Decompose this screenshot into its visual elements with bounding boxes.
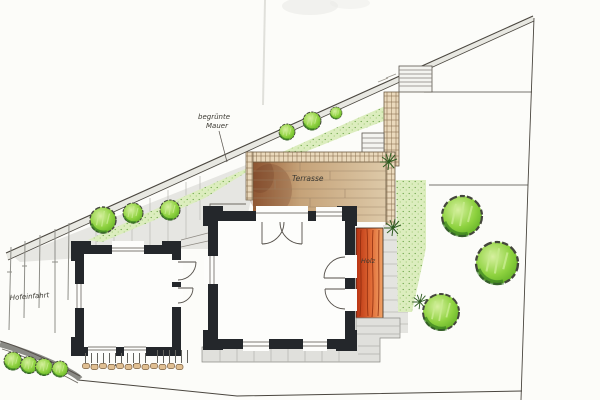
bush bbox=[4, 352, 22, 370]
bush bbox=[279, 124, 295, 140]
garden-site-plan: Hofeinfahrt begrünte Mauer bbox=[0, 0, 600, 400]
label-greened-wall-line2: Mauer bbox=[206, 122, 229, 130]
wood-deck: Holz bbox=[356, 228, 383, 318]
outbuilding bbox=[71, 241, 196, 356]
window bbox=[243, 335, 269, 351]
main-house bbox=[203, 206, 357, 351]
tree bbox=[476, 242, 518, 284]
label-terrace: Terrasse bbox=[292, 174, 324, 183]
bush bbox=[90, 207, 116, 233]
tree bbox=[442, 196, 482, 236]
window bbox=[112, 241, 144, 257]
label-wood: Holz bbox=[361, 257, 376, 265]
bush bbox=[303, 112, 321, 130]
tree bbox=[423, 294, 459, 330]
bush bbox=[123, 203, 143, 223]
window bbox=[303, 335, 327, 351]
window bbox=[204, 256, 220, 284]
outbuilding-interior bbox=[84, 254, 172, 347]
plan-drawing: Hofeinfahrt begrünte Mauer bbox=[0, 0, 600, 400]
window bbox=[316, 207, 342, 221]
bush bbox=[160, 200, 180, 220]
label-greened-wall-line1: begrünte bbox=[198, 113, 230, 121]
main-house-interior bbox=[218, 221, 345, 339]
bush bbox=[52, 361, 68, 377]
bush bbox=[36, 359, 53, 376]
bush bbox=[21, 357, 38, 374]
window bbox=[71, 284, 87, 308]
bush bbox=[330, 107, 342, 119]
